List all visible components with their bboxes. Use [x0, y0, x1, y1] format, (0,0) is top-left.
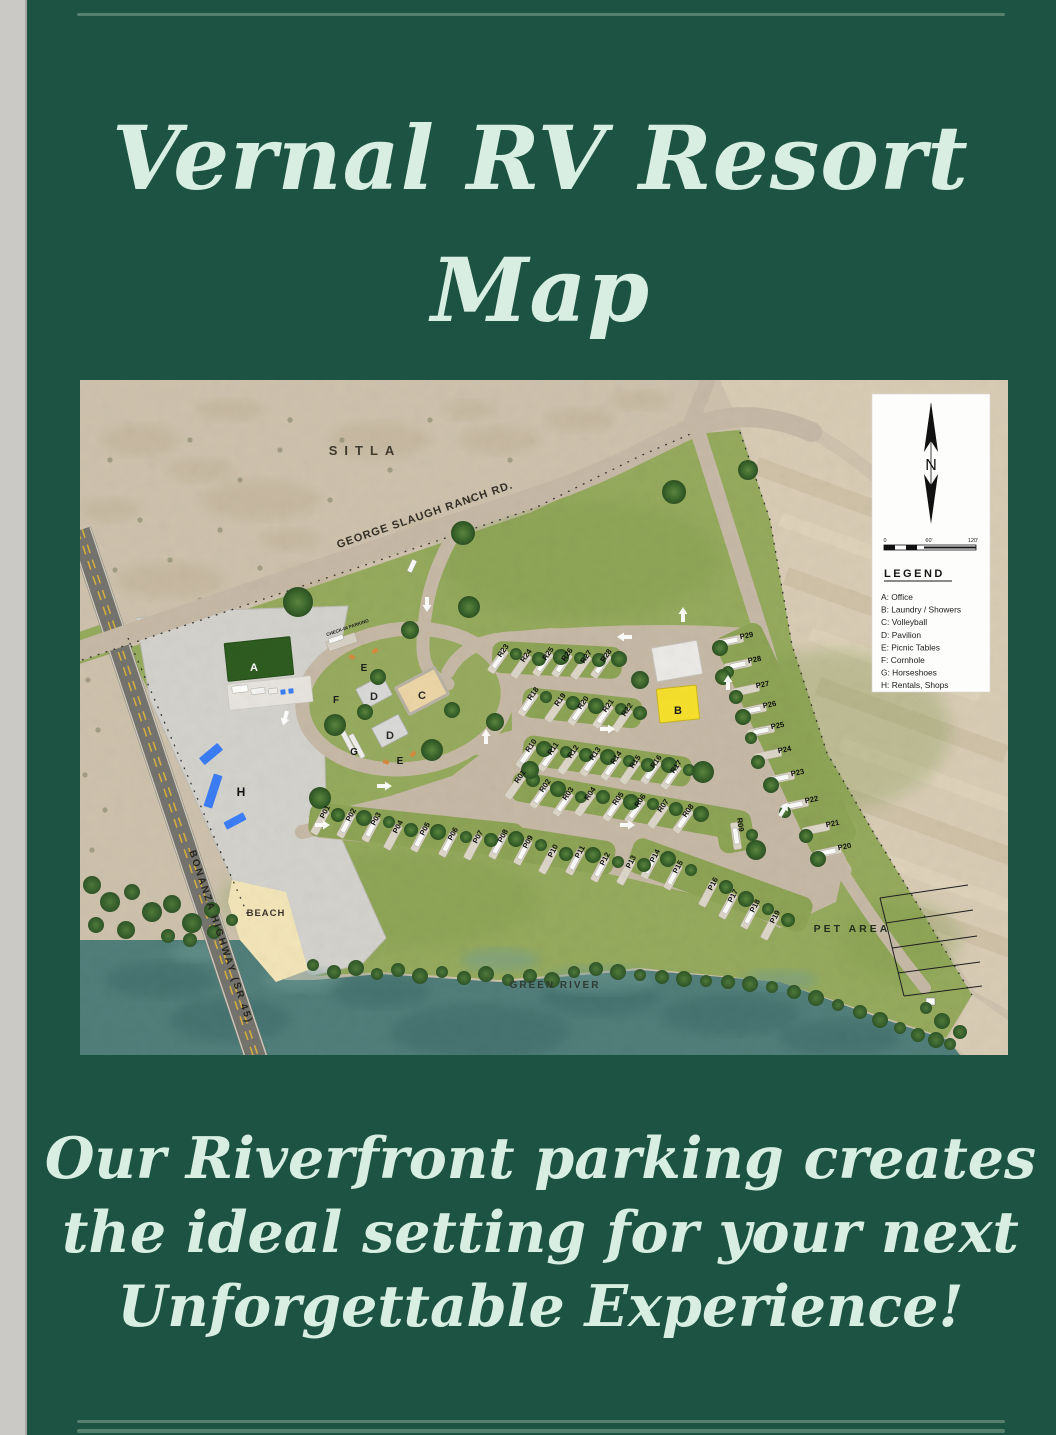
page-title: Vernal RV Resort Map [25, 92, 1056, 356]
scale-60: 60' [925, 538, 932, 544]
top-divider-line [77, 13, 1005, 16]
viewer-edge-strip [0, 0, 27, 1435]
north-label: N [925, 457, 937, 474]
legend-entry: C: Volleyball [881, 617, 927, 627]
bottom-divider-line-1 [77, 1420, 1005, 1423]
flyer-page: Vernal RV Resort Map [0, 0, 1056, 1435]
title-line-2: Map [25, 224, 1056, 356]
legend-entry: D: Pavilion [881, 630, 921, 640]
scale-0: 0 [883, 538, 886, 544]
satellite-grain [80, 380, 1008, 1055]
legend-entry: E: Picnic Tables [881, 642, 940, 652]
legend-entry: B: Laundry / Showers [881, 605, 961, 615]
legend-title: LEGEND [884, 568, 945, 580]
resort-map: R23R24R25R26R27R28R18R19R20R21R22R10R11R… [80, 380, 1008, 1055]
footer-text: Our Riverfront parking creates the ideal… [25, 1122, 1056, 1344]
bottom-divider-line-2 [77, 1429, 1005, 1433]
resort-map-svg: R23R24R25R26R27R28R18R19R20R21R22R10R11R… [80, 380, 1008, 1055]
footer-line-2: the ideal setting for your next [25, 1196, 1056, 1270]
footer-line-1: Our Riverfront parking creates [25, 1122, 1056, 1196]
legend-entry: F: Cornhole [881, 655, 925, 665]
scale-120: 120' [968, 538, 978, 544]
footer-line-3: Unforgettable Experience! [25, 1270, 1056, 1344]
title-line-1: Vernal RV Resort [25, 92, 1056, 224]
legend-entry: A: Office [881, 592, 913, 602]
legend-entry: H: Rentals, Shops [881, 680, 949, 690]
legend: N 0 60' 120' LEGEND A: OfficeB: Laundry … [872, 394, 990, 692]
legend-entry: G: Horseshoes [881, 668, 937, 678]
